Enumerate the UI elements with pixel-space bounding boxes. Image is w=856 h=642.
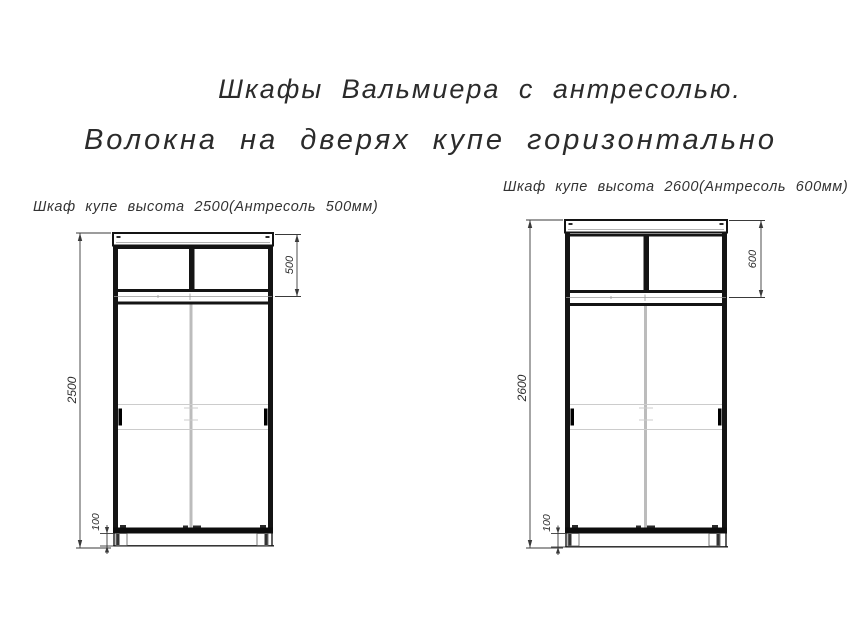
left-dim-height-label: 2500 [65, 376, 79, 404]
drawing-sheet: Шкафы Вальмиера с антресолью. Волокна на… [0, 0, 856, 642]
left-side-wall-right [268, 246, 273, 528]
left-dim-height: 2500 [65, 233, 111, 548]
right-shelf-band [565, 295, 727, 307]
right-door-handle-left [571, 409, 575, 426]
right-cornice [565, 220, 727, 233]
left-mezzanine [113, 247, 273, 293]
left-door-handle-right [264, 409, 268, 426]
right-mezzanine-divider [644, 234, 650, 290]
left-sliding-doors [118, 305, 268, 528]
right-dim-mezzanine-label: 600 [747, 249, 759, 268]
left-dim-plinth-label: 100 [90, 513, 102, 531]
right-dim-height: 2600 [515, 220, 563, 548]
wardrobe-drawings: 2500 500 100 [0, 0, 856, 642]
right-plinth [565, 534, 728, 548]
left-side-wall-left [113, 246, 118, 528]
left-dim-mezzanine: 500 [275, 235, 301, 297]
left-door-handle-left [119, 409, 123, 426]
left-dim-mezzanine-label: 500 [284, 255, 296, 274]
left-shelf-band [113, 294, 273, 305]
left-door-center-line [190, 305, 193, 528]
right-sliding-doors [570, 306, 722, 528]
left-mezzanine-divider [189, 247, 195, 291]
right-dim-plinth-label: 100 [541, 514, 553, 532]
wardrobe-2500-figure: 2500 500 100 [65, 233, 301, 554]
right-dim-plinth: 100 [541, 514, 566, 555]
right-dim-height-label: 2600 [515, 374, 529, 402]
wardrobe-2600-figure: 2600 600 100 [515, 220, 765, 555]
right-dim-mezzanine: 600 [729, 221, 765, 298]
right-mezzanine [565, 234, 727, 293]
right-side-wall-right [722, 233, 727, 528]
right-side-wall-left [565, 233, 570, 528]
right-door-handle-right [718, 409, 722, 426]
left-plinth [113, 534, 274, 547]
left-cornice [113, 233, 273, 246]
right-door-center-line [644, 306, 647, 528]
left-bottom-panel [113, 525, 273, 534]
